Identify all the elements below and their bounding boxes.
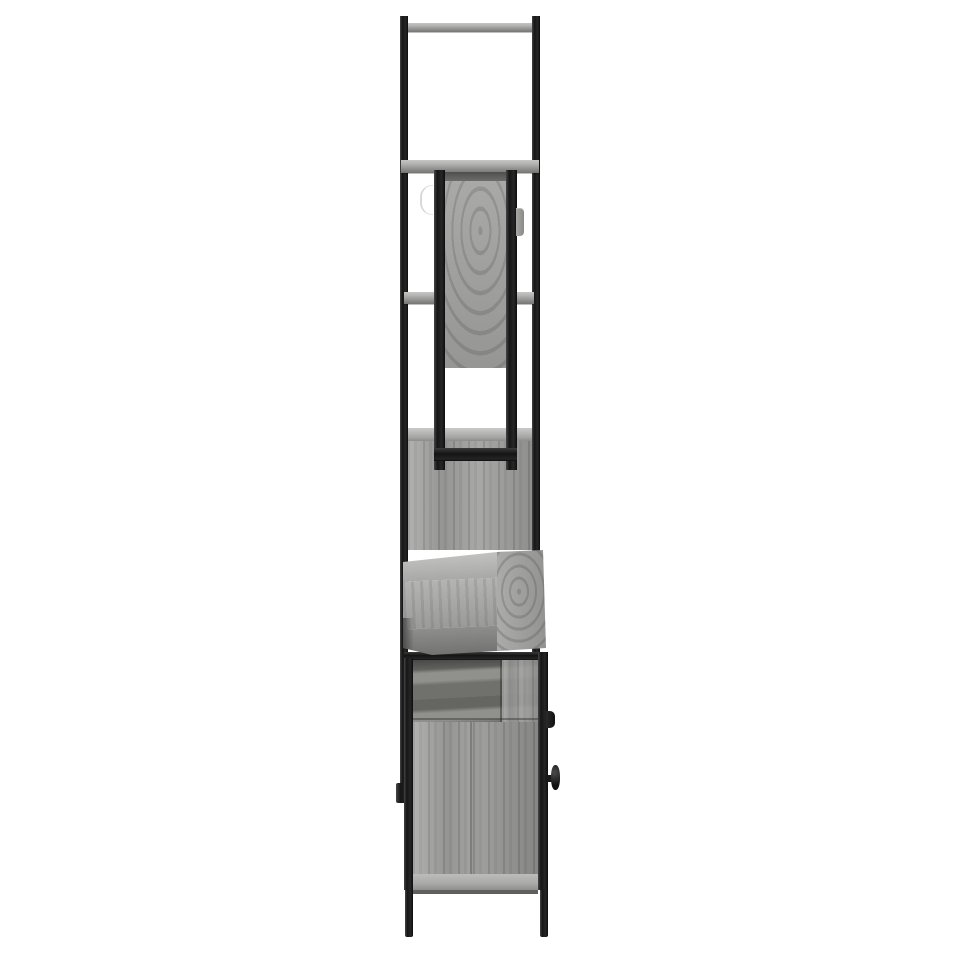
- cabinet-panel-right-shade: [472, 722, 538, 878]
- cabinet-lower-knob: [551, 765, 560, 790]
- cabinet-shelf-seam: [413, 718, 538, 720]
- mirror-door-handle: [516, 208, 524, 236]
- cabinet-left-rail: [404, 658, 413, 890]
- mirror-panel-top-edge: [445, 172, 506, 181]
- towel-hook: [420, 185, 433, 215]
- tabletop-right-face: [497, 548, 546, 654]
- cabinet-bottom-edge: [413, 874, 538, 894]
- right-leg: [540, 890, 548, 937]
- left-leg: [405, 890, 413, 937]
- cabinet-upper-right-panel: [502, 660, 538, 722]
- product-photo-canvas: [0, 0, 955, 955]
- top-shelf: [408, 23, 532, 32]
- cabinet-upper-interior: [413, 660, 538, 722]
- cabinet-upper-knob: [546, 711, 555, 728]
- cabinet-right-rail: [538, 652, 548, 890]
- cabinet-side-panel: [413, 722, 538, 878]
- mirror-frame-bottom-rail: [434, 448, 517, 461]
- mirror-frame-left-rail: [434, 170, 445, 470]
- mirror-cabinet-side-panel: [445, 172, 506, 368]
- vanity-table-top: [400, 546, 548, 658]
- tabletop-edge-band-middle: [400, 577, 510, 630]
